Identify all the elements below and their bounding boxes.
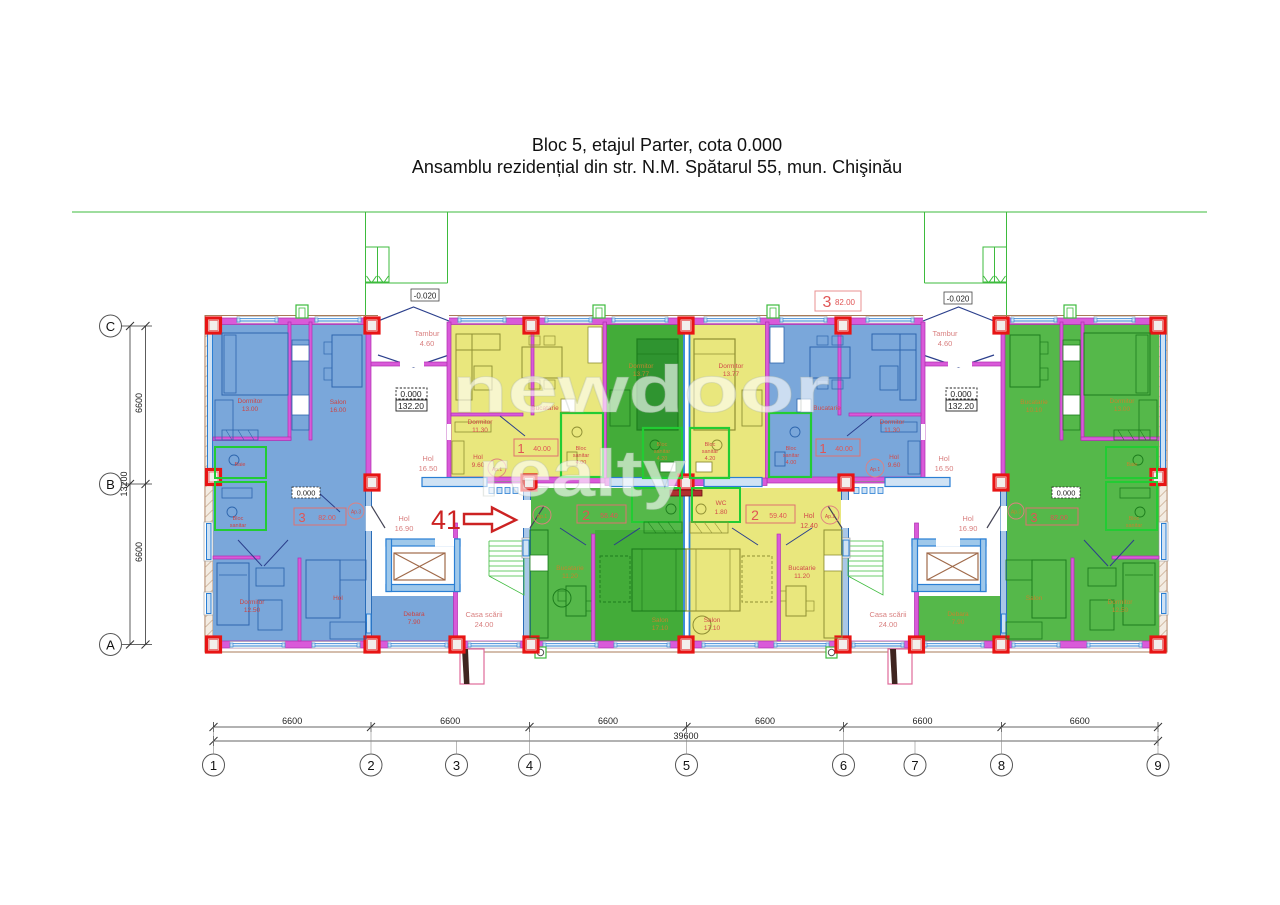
svg-text:0.000: 0.000: [400, 389, 422, 399]
svg-text:11.30: 11.30: [884, 427, 900, 434]
svg-text:1: 1: [210, 758, 217, 773]
svg-text:6600: 6600: [134, 393, 144, 413]
svg-text:Dormitor: Dormitor: [880, 419, 906, 426]
svg-text:Dormitor: Dormitor: [1110, 398, 1136, 405]
svg-text:Hol: Hol: [398, 514, 410, 523]
svg-text:Salon: Salon: [330, 399, 347, 406]
svg-text:12.40: 12.40: [800, 523, 818, 530]
svg-text:6600: 6600: [282, 716, 302, 726]
svg-text:132.20: 132.20: [948, 401, 974, 411]
svg-text:sanitar: sanitar: [702, 449, 719, 455]
svg-text:Bloc: Bloc: [1129, 516, 1140, 522]
svg-text:Salon: Salon: [704, 617, 721, 624]
svg-text:Casa scării: Casa scării: [869, 610, 906, 619]
svg-text:9.60: 9.60: [888, 462, 901, 469]
svg-text:Ap.1: Ap.1: [870, 467, 881, 473]
svg-text:13.00: 13.00: [1114, 406, 1131, 413]
svg-text:0.000: 0.000: [297, 489, 316, 498]
svg-text:17.10: 17.10: [704, 625, 721, 632]
svg-text:newdoor: newdoor: [452, 352, 830, 426]
svg-text:6600: 6600: [755, 716, 775, 726]
svg-text:Ap.2: Ap.2: [825, 514, 836, 520]
svg-text:3: 3: [1030, 510, 1037, 525]
svg-text:Bucatarie: Bucatarie: [556, 565, 584, 572]
svg-text:82.00: 82.00: [318, 515, 336, 522]
svg-text:12.50: 12.50: [1112, 607, 1129, 614]
svg-text:6600: 6600: [134, 542, 144, 562]
svg-text:Bloc 5, etajul Parter, cota 0.: Bloc 5, etajul Parter, cota 0.000: [532, 135, 782, 155]
svg-text:5: 5: [683, 758, 690, 773]
svg-text:WC: WC: [716, 500, 727, 507]
svg-text:Bucatarie: Bucatarie: [788, 565, 816, 572]
svg-text:Hol: Hol: [333, 595, 343, 602]
svg-text:1: 1: [819, 441, 826, 456]
svg-text:6600: 6600: [440, 716, 460, 726]
svg-text:16.50: 16.50: [935, 464, 954, 473]
svg-text:Ap.1: Ap.1: [537, 514, 548, 520]
svg-text:Bloc: Bloc: [705, 442, 716, 448]
svg-text:56.40: 56.40: [600, 513, 618, 520]
svg-text:sanitar: sanitar: [1126, 523, 1143, 529]
svg-text:9: 9: [1154, 758, 1161, 773]
svg-text:13.00: 13.00: [242, 406, 259, 413]
svg-text:Dormitor: Dormitor: [240, 599, 266, 606]
svg-text:Baie: Baie: [234, 462, 245, 468]
svg-text:11.20: 11.20: [794, 573, 810, 580]
svg-text:C: C: [106, 319, 115, 334]
svg-text:Salon: Salon: [1026, 595, 1043, 602]
svg-text:Debara: Debara: [947, 611, 969, 618]
svg-text:4.60: 4.60: [420, 339, 435, 348]
svg-text:16.90: 16.90: [959, 524, 978, 533]
svg-text:Tambur: Tambur: [414, 329, 440, 338]
svg-text:12.50: 12.50: [244, 607, 261, 614]
svg-text:realty: realty: [478, 436, 686, 510]
svg-text:132.20: 132.20: [398, 401, 424, 411]
svg-text:7.90: 7.90: [408, 619, 421, 626]
svg-text:Baie: Baie: [1126, 462, 1137, 468]
svg-text:Dormitor: Dormitor: [1108, 599, 1134, 606]
svg-text:Bloc: Bloc: [233, 516, 244, 522]
svg-text:1.80: 1.80: [715, 509, 728, 516]
svg-text:sanitar: sanitar: [230, 523, 247, 529]
svg-text:8: 8: [998, 758, 1005, 773]
svg-text:4: 4: [526, 758, 533, 773]
svg-text:24.00: 24.00: [879, 620, 898, 629]
svg-text:sanitar: sanitar: [783, 453, 800, 459]
svg-text:40.00: 40.00: [835, 446, 853, 453]
svg-text:Ap.3: Ap.3: [1011, 510, 1022, 516]
svg-text:Hol: Hol: [422, 454, 434, 463]
svg-text:0.000: 0.000: [950, 389, 972, 399]
svg-text:Hol: Hol: [889, 454, 899, 461]
svg-text:16.90: 16.90: [395, 524, 414, 533]
svg-text:6600: 6600: [1070, 716, 1090, 726]
svg-text:16.00: 16.00: [330, 407, 347, 414]
svg-text:2: 2: [751, 507, 759, 523]
svg-text:Salon: Salon: [652, 617, 669, 624]
svg-text:Tambur: Tambur: [932, 329, 958, 338]
svg-text:Bloc: Bloc: [786, 446, 797, 452]
svg-text:11.30: 11.30: [472, 427, 488, 434]
svg-text:Ansamblu rezidențial din str.: Ansamblu rezidențial din str. N.M. Spăta…: [412, 157, 902, 177]
svg-text:-0.020: -0.020: [414, 292, 437, 301]
svg-text:3: 3: [453, 758, 460, 773]
svg-text:0.000: 0.000: [1057, 489, 1076, 498]
svg-text:59.40: 59.40: [769, 513, 787, 520]
svg-text:4.00: 4.00: [786, 460, 797, 466]
svg-text:3: 3: [823, 294, 832, 311]
svg-text:24.00: 24.00: [475, 620, 494, 629]
svg-text:-0.020: -0.020: [947, 295, 970, 304]
svg-text:10.10: 10.10: [1026, 407, 1043, 414]
svg-text:39600: 39600: [673, 731, 698, 741]
svg-text:7.90: 7.90: [952, 619, 965, 626]
svg-text:Hol: Hol: [962, 514, 974, 523]
svg-text:4.20: 4.20: [705, 456, 716, 462]
svg-text:4.60: 4.60: [938, 339, 953, 348]
svg-text:Dormitor: Dormitor: [238, 398, 264, 405]
svg-text:82.00: 82.00: [1050, 515, 1068, 522]
svg-text:2: 2: [367, 758, 374, 773]
svg-text:82.00: 82.00: [835, 298, 856, 307]
svg-text:6600: 6600: [912, 716, 932, 726]
svg-text:Casa scării: Casa scării: [465, 610, 502, 619]
svg-text:41: 41: [431, 505, 461, 535]
svg-text:Hol: Hol: [804, 513, 815, 520]
svg-text:Hol: Hol: [938, 454, 950, 463]
svg-text:Debara: Debara: [403, 611, 425, 618]
svg-text:16.50: 16.50: [419, 464, 438, 473]
svg-text:11.20: 11.20: [562, 573, 578, 580]
svg-text:7: 7: [911, 758, 918, 773]
svg-text:6: 6: [840, 758, 847, 773]
svg-text:A: A: [106, 638, 115, 653]
svg-text:B: B: [106, 477, 115, 492]
svg-text:3: 3: [298, 510, 305, 525]
svg-text:Ap.3: Ap.3: [351, 510, 362, 516]
svg-text:Bucatarie: Bucatarie: [1020, 399, 1048, 406]
svg-text:6600: 6600: [598, 716, 618, 726]
svg-text:17.10: 17.10: [652, 625, 669, 632]
